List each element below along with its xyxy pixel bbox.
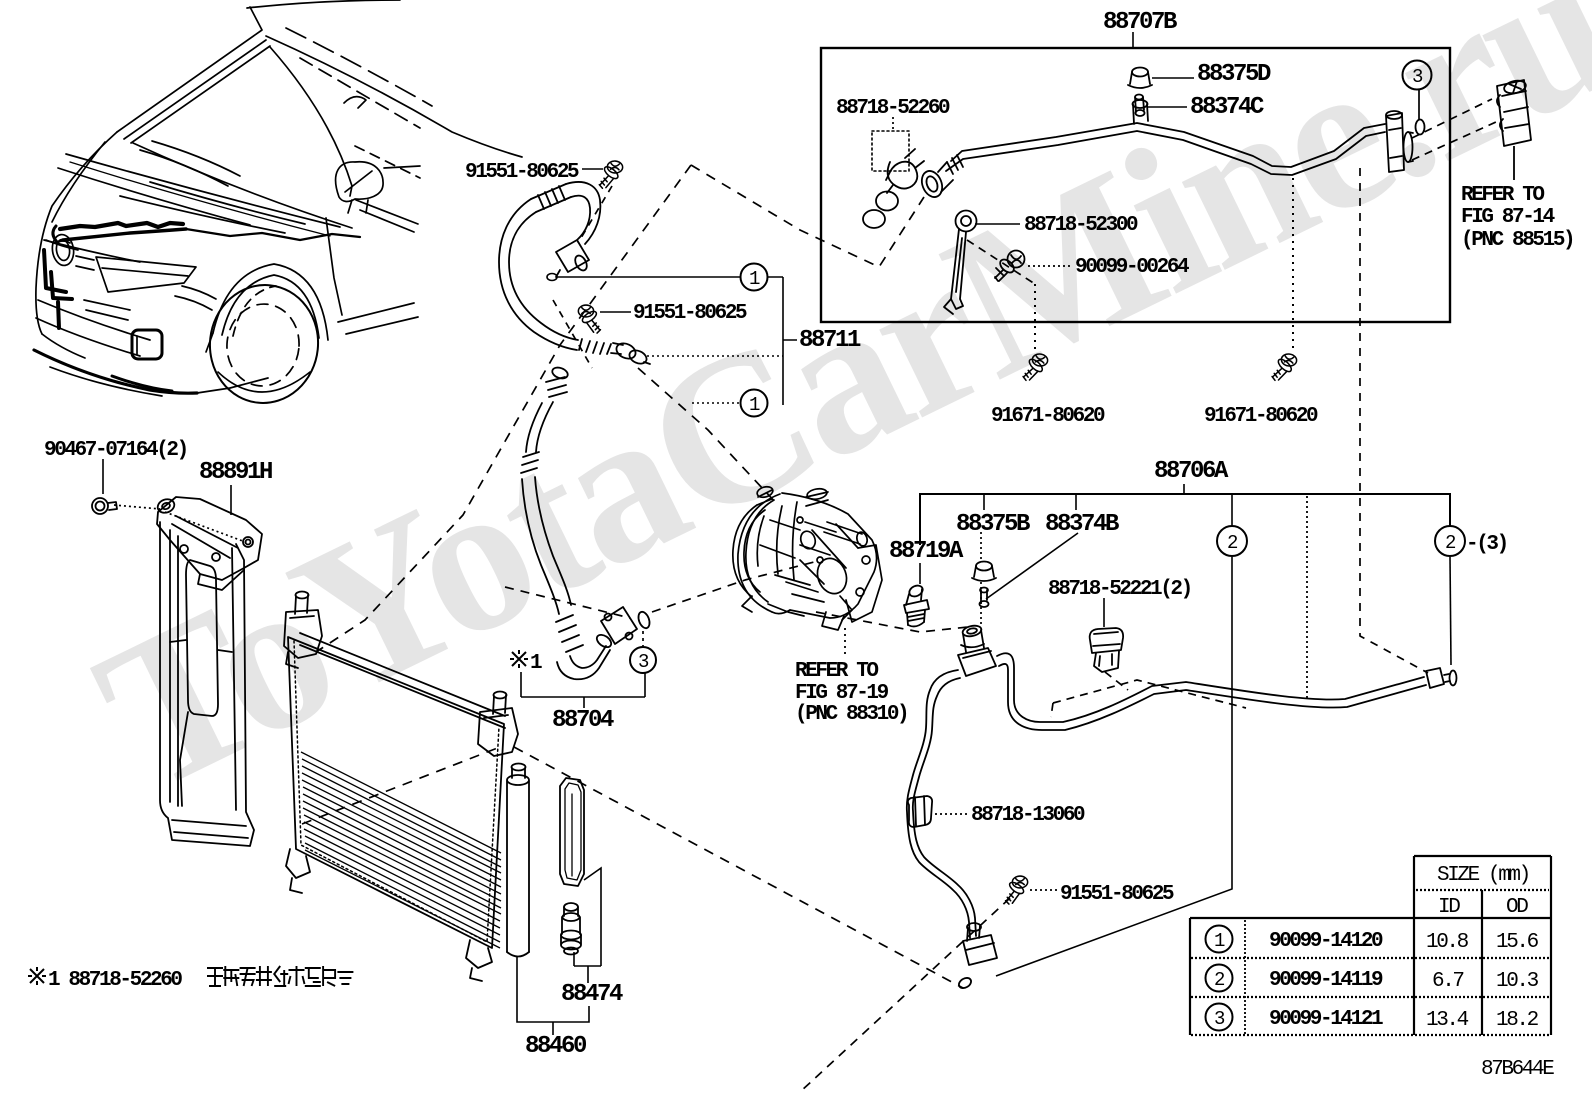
svg-text:91551-80625: 91551-80625 [1060, 883, 1174, 906]
svg-text:88460: 88460 [525, 1033, 587, 1060]
svg-text:10.8: 10.8 [1426, 931, 1469, 954]
svg-text:FIG 87-19: FIG 87-19 [795, 682, 889, 705]
svg-text:90099-14120: 90099-14120 [1269, 930, 1383, 953]
svg-text:91551-80625: 91551-80625 [633, 302, 747, 325]
svg-text:88718-13060: 88718-13060 [971, 804, 1085, 827]
svg-text:3: 3 [1214, 1008, 1225, 1030]
svg-text:1: 1 [749, 268, 760, 290]
svg-text:ID: ID [1438, 896, 1460, 919]
svg-text:REFER TO: REFER TO [795, 660, 878, 683]
svg-text:(PNC 88515): (PNC 88515) [1461, 229, 1573, 252]
svg-text:88718-52221(2): 88718-52221(2) [1048, 578, 1191, 601]
svg-text:2: 2 [1214, 969, 1225, 991]
svg-text:87B644E: 87B644E [1481, 1058, 1554, 1081]
svg-text:88891H: 88891H [199, 459, 272, 486]
svg-text:13.4: 13.4 [1426, 1009, 1469, 1032]
svg-text:91551-80625: 91551-80625 [465, 161, 579, 184]
svg-text:88474: 88474 [561, 981, 623, 1008]
svg-text:(PNC 88310): (PNC 88310) [795, 703, 907, 726]
svg-text:90467-07164(2): 90467-07164(2) [44, 439, 187, 462]
svg-text:SIZE (mm): SIZE (mm) [1437, 864, 1529, 887]
svg-text:2: 2 [1445, 532, 1456, 554]
svg-text:88375B: 88375B [956, 511, 1030, 538]
svg-text:88718-52260: 88718-52260 [836, 97, 950, 120]
svg-text:91671-80620: 91671-80620 [1204, 405, 1318, 428]
svg-text:FIG 87-14: FIG 87-14 [1461, 206, 1555, 229]
svg-text:2: 2 [1227, 532, 1238, 554]
svg-text:88704: 88704 [552, 707, 614, 734]
svg-text:10.3: 10.3 [1496, 970, 1539, 993]
svg-text:90099-14119: 90099-14119 [1269, 969, 1383, 992]
svg-text:-(3): -(3) [1466, 533, 1507, 556]
svg-text:REFER TO: REFER TO [1461, 184, 1544, 207]
svg-text:88374B: 88374B [1045, 511, 1119, 538]
svg-text:3: 3 [1412, 66, 1423, 88]
svg-text:91671-80620: 91671-80620 [991, 405, 1105, 428]
svg-text:90099-00264: 90099-00264 [1075, 256, 1189, 279]
svg-text:88719A: 88719A [889, 538, 964, 565]
svg-text:18.2: 18.2 [1496, 1009, 1539, 1032]
svg-text:3: 3 [638, 651, 649, 673]
svg-text:1 88718-52260: 1 88718-52260 [48, 969, 182, 992]
svg-text:88375D: 88375D [1197, 61, 1271, 88]
svg-text:OD: OD [1506, 896, 1528, 919]
svg-text:15.6: 15.6 [1496, 931, 1539, 954]
svg-text:6.7: 6.7 [1432, 970, 1463, 993]
svg-text:1: 1 [749, 394, 760, 416]
svg-text:88718-52300: 88718-52300 [1024, 214, 1138, 237]
svg-text:1: 1 [1214, 930, 1225, 952]
svg-text:88707B: 88707B [1103, 9, 1177, 36]
svg-text:88374C: 88374C [1190, 94, 1264, 121]
svg-text:88706A: 88706A [1154, 458, 1229, 485]
svg-text:1: 1 [530, 652, 542, 675]
svg-text:90099-14121: 90099-14121 [1269, 1008, 1383, 1031]
svg-text:88711: 88711 [799, 327, 861, 354]
